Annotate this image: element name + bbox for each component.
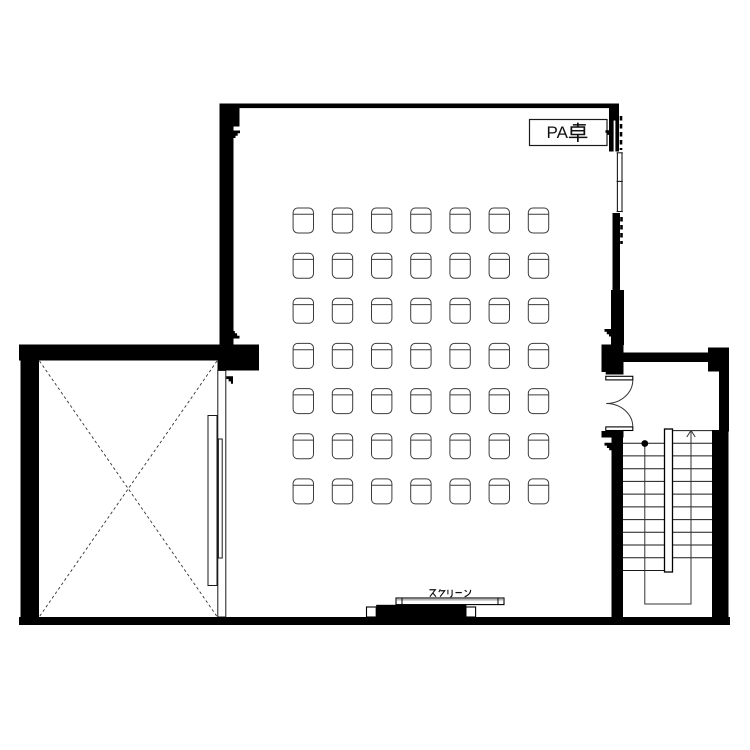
- svg-text:PA: PA: [547, 123, 569, 142]
